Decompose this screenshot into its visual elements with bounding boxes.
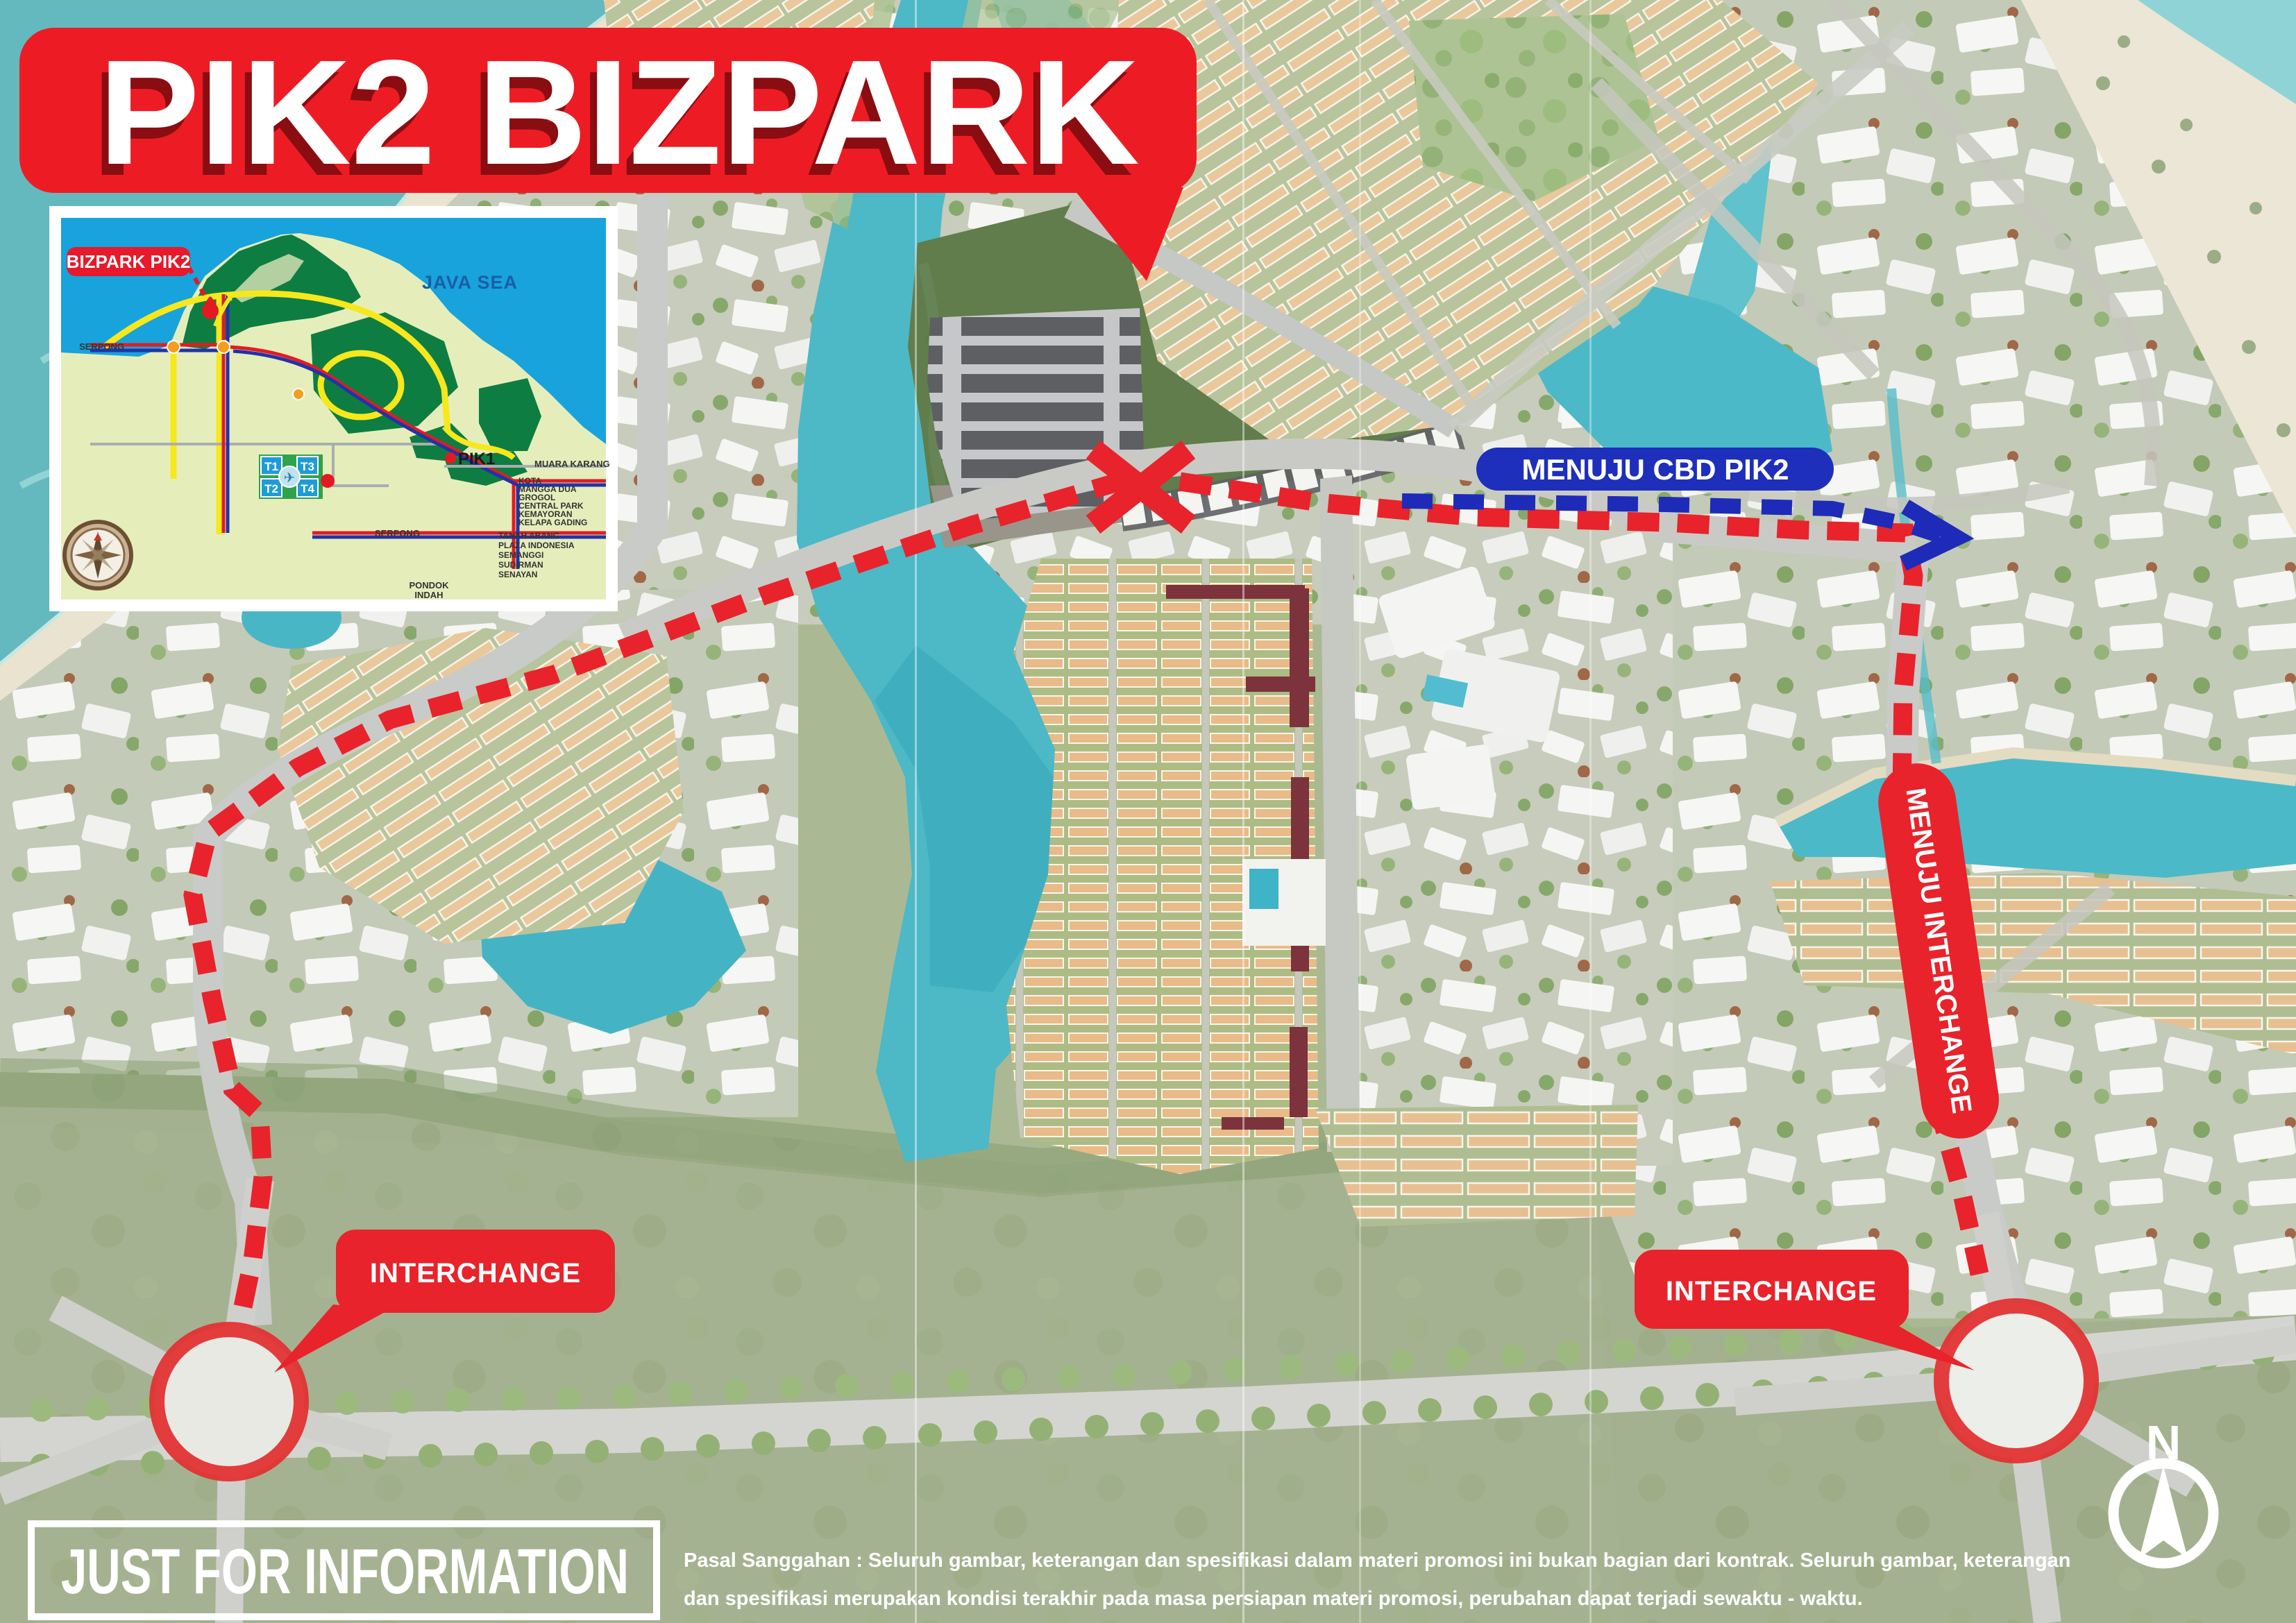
svg-text:SUDIRMAN: SUDIRMAN: [498, 560, 543, 570]
svg-text:T3: T3: [301, 460, 314, 473]
svg-text:SEMANGGI: SEMANGGI: [498, 550, 543, 560]
svg-text:JAVA SEA: JAVA SEA: [422, 272, 518, 293]
svg-text:PIK2 BIZPARK: PIK2 BIZPARK: [99, 28, 1140, 196]
svg-text:SENAYAN: SENAYAN: [498, 570, 537, 579]
svg-text:JUST FOR INFORMATION: JUST FOR INFORMATION: [61, 1536, 629, 1607]
svg-text:MENUJU CBD PIK2: MENUJU CBD PIK2: [1521, 453, 1789, 486]
svg-text:PLAZA INDONESIA: PLAZA INDONESIA: [498, 541, 575, 550]
svg-text:SERPONG: SERPONG: [79, 341, 124, 352]
svg-text:INDAH: INDAH: [414, 590, 443, 600]
svg-text:T1: T1: [264, 460, 278, 473]
svg-text:PIK1: PIK1: [458, 450, 495, 468]
svg-text:INTERCHANGE: INTERCHANGE: [370, 1258, 581, 1289]
svg-text:dan spesifikasi merupakan kond: dan spesifikasi merupakan kondisi terakh…: [684, 1588, 1863, 1610]
svg-text:KELAPA GADING: KELAPA GADING: [518, 518, 587, 527]
svg-text:TANAH ABANG: TANAH ABANG: [498, 531, 559, 541]
svg-text:INTERCHANGE: INTERCHANGE: [1666, 1276, 1877, 1307]
svg-text:SERPONG: SERPONG: [375, 528, 420, 538]
svg-text:Pasal Sanggahan : Seluruh gamb: Pasal Sanggahan : Seluruh gambar, ketera…: [684, 1549, 2070, 1572]
svg-text:T4: T4: [301, 482, 314, 495]
svg-text:BIZPARK PIK2: BIZPARK PIK2: [67, 251, 191, 272]
svg-text:✈: ✈: [284, 470, 296, 486]
svg-text:MUARA KARANG: MUARA KARANG: [534, 459, 610, 469]
svg-text:T2: T2: [264, 482, 278, 495]
svg-text:PONDOK: PONDOK: [409, 580, 449, 590]
